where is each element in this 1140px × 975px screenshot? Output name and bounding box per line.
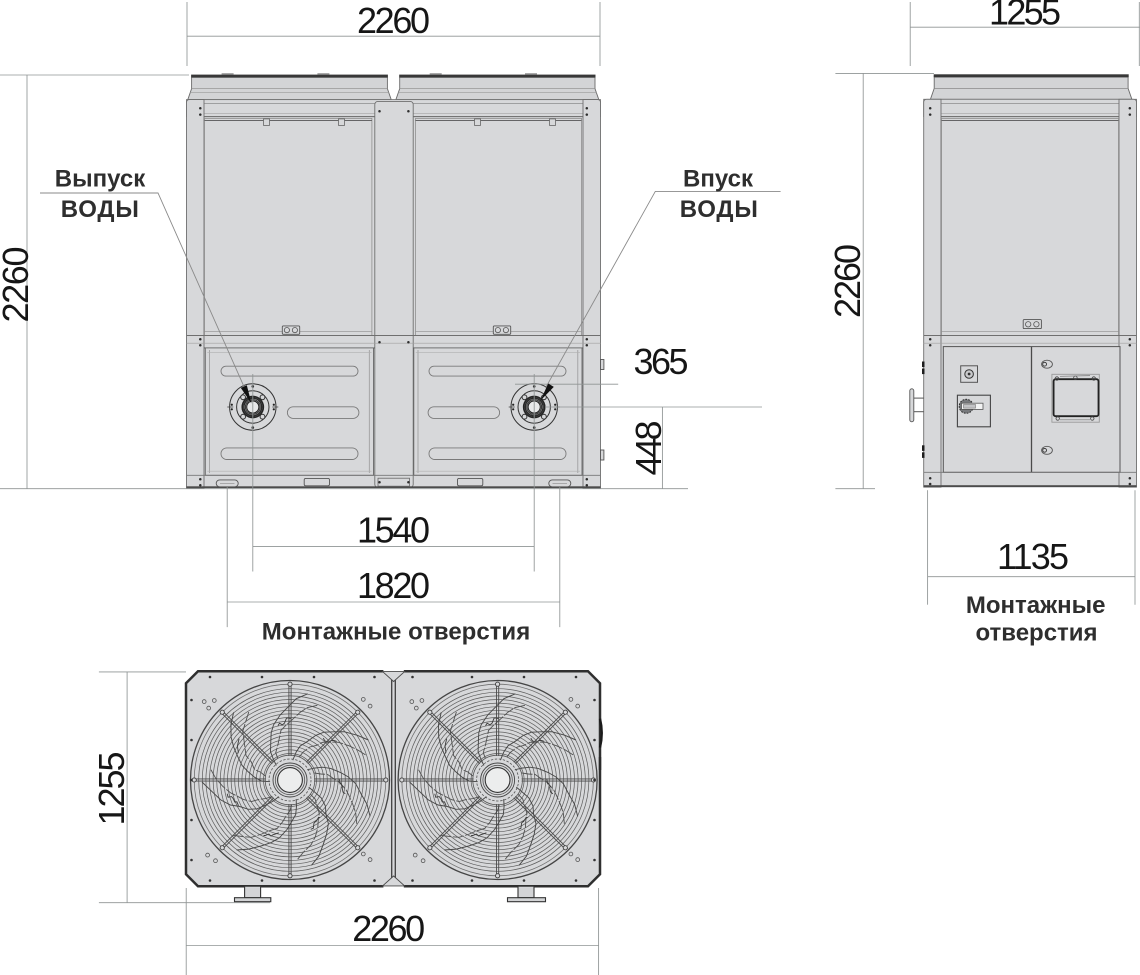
svg-text:Монтажные: Монтажные	[966, 592, 1106, 619]
svg-text:Впуск: Впуск	[683, 166, 754, 193]
svg-text:Выпуск: Выпуск	[55, 166, 146, 193]
svg-text:ВОДЫ: ВОДЫ	[680, 196, 759, 223]
svg-text:2260: 2260	[827, 244, 868, 318]
svg-text:1820: 1820	[357, 565, 430, 606]
svg-text:2260: 2260	[357, 0, 430, 41]
svg-text:1135: 1135	[997, 536, 1069, 577]
svg-text:2260: 2260	[0, 247, 36, 323]
svg-text:1255: 1255	[91, 752, 132, 826]
svg-text:448: 448	[628, 421, 669, 476]
svg-text:ВОДЫ: ВОДЫ	[61, 196, 140, 223]
svg-text:2260: 2260	[352, 908, 425, 949]
svg-text:1255: 1255	[989, 0, 1061, 33]
svg-text:1540: 1540	[357, 510, 430, 551]
svg-text:365: 365	[634, 341, 689, 382]
svg-text:отверстия: отверстия	[975, 620, 1097, 647]
svg-text:Монтажные отверстия: Монтажные отверстия	[262, 619, 530, 646]
